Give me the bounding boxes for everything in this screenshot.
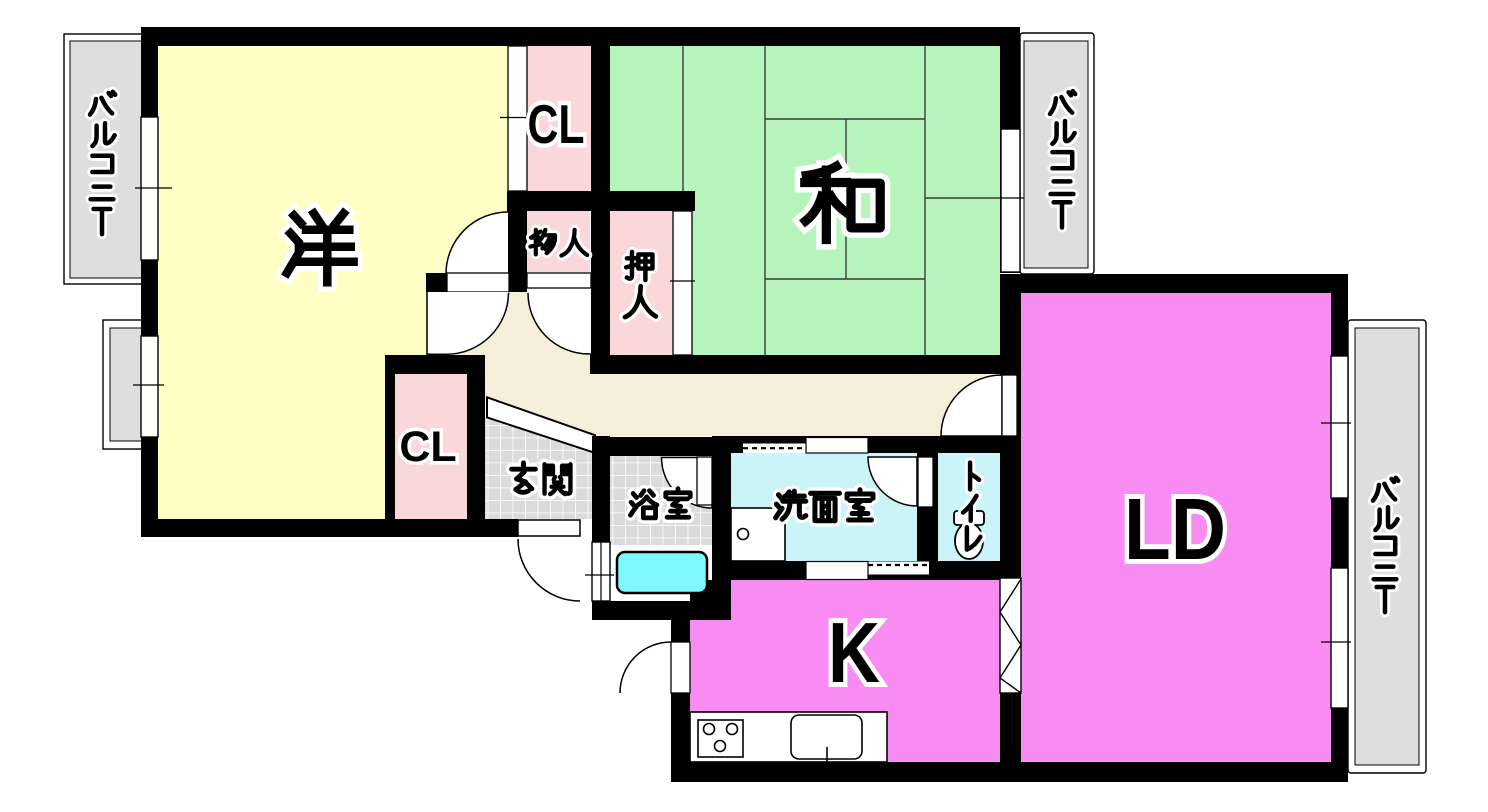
svg-text:CL: CL — [528, 93, 585, 155]
svg-text:CL: CL — [399, 423, 456, 471]
svg-text:K: K — [828, 606, 880, 701]
svg-text:LD: LD — [1124, 481, 1226, 578]
